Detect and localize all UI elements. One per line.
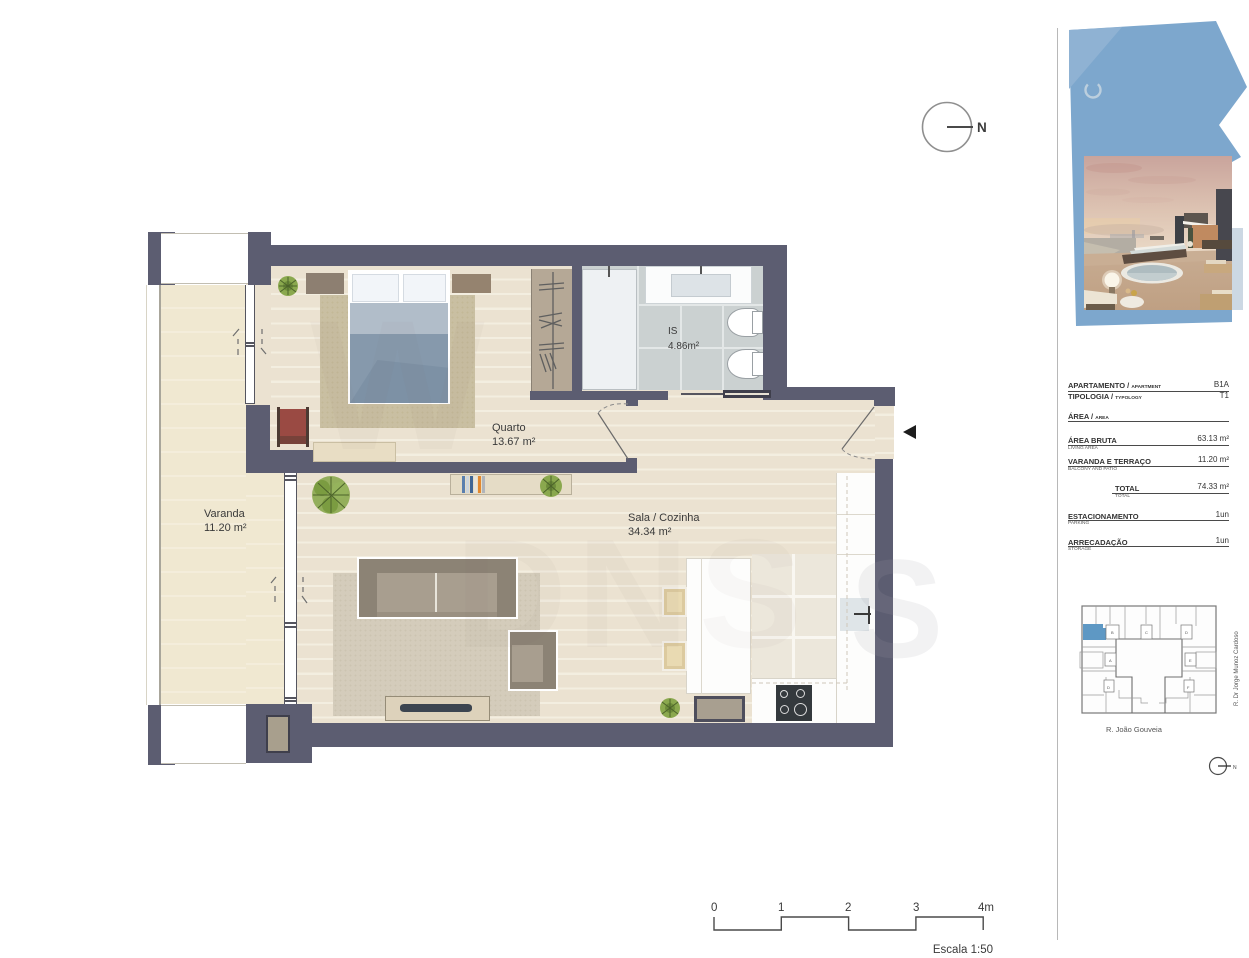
svg-text:B: B <box>1111 630 1114 635</box>
svg-text:N: N <box>977 120 987 135</box>
svg-text:A: A <box>1109 658 1112 663</box>
svg-text:E: E <box>1189 658 1192 663</box>
svg-text:0: 0 <box>711 902 717 914</box>
svg-text:Escala 1:50: Escala 1:50 <box>933 944 993 956</box>
svg-text:D: D <box>1107 685 1110 690</box>
svg-text:D: D <box>1185 630 1188 635</box>
svg-text:N: N <box>1233 765 1237 771</box>
svg-text:4m: 4m <box>978 902 994 914</box>
svg-text:3: 3 <box>913 902 919 914</box>
svg-text:C: C <box>1145 630 1148 635</box>
svg-text:2: 2 <box>845 902 851 914</box>
svg-text:1: 1 <box>778 902 784 914</box>
